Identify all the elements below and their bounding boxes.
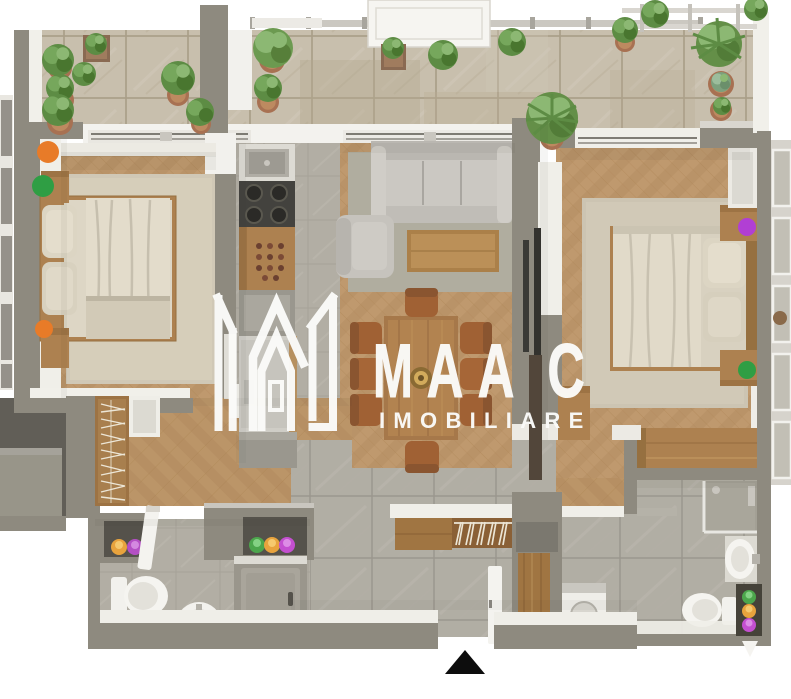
svg-text:C: C xyxy=(547,328,584,413)
svg-text:A: A xyxy=(427,328,464,414)
svg-text:IMOBILIARE: IMOBILIARE xyxy=(379,408,592,433)
svg-text:A: A xyxy=(478,328,515,414)
svg-text:M: M xyxy=(373,330,413,414)
